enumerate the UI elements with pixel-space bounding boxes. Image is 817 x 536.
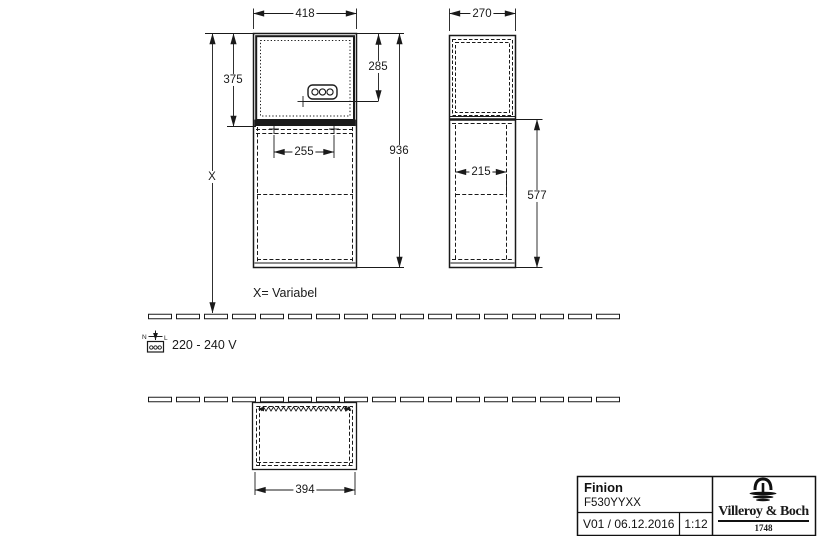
version-date: V01 / 06.12.2016 bbox=[583, 517, 674, 531]
brand-fountain-spacer bbox=[713, 477, 814, 502]
svg-text:L: L bbox=[164, 335, 168, 342]
dim-label-plan-width: 394 bbox=[293, 484, 316, 496]
brand-name: Villeroy & Boch bbox=[718, 505, 808, 522]
dim-label-lower-height: 577 bbox=[525, 190, 548, 202]
plan-view bbox=[253, 403, 357, 470]
dim-label-upper-height: 375 bbox=[221, 74, 244, 86]
socket-icon bbox=[308, 85, 337, 99]
dim-label-total-height: 936 bbox=[387, 145, 410, 157]
dim-label-variable-height: X bbox=[206, 171, 218, 183]
side-view bbox=[450, 36, 516, 268]
dim-label-socket-height: 285 bbox=[366, 61, 389, 73]
variable-note: X= Variabel bbox=[253, 286, 317, 300]
compartment-divider-band bbox=[254, 120, 355, 126]
brand-logo: Villeroy & Boch 1748 bbox=[713, 477, 814, 535]
product-name: Finion bbox=[584, 480, 623, 495]
technical-drawing-canvas: N L bbox=[0, 0, 817, 536]
dim-label-front-width: 418 bbox=[293, 7, 316, 19]
brand-year: 1748 bbox=[713, 524, 814, 533]
dim-label-mount-spacing: 255 bbox=[292, 146, 315, 158]
dim-label-depth: 270 bbox=[470, 7, 493, 19]
svg-text:N: N bbox=[142, 334, 147, 341]
drawing-scale: 1:12 bbox=[680, 517, 712, 531]
technical-drawing-page: N L bbox=[0, 0, 817, 536]
voltage-note: 220 - 240 V bbox=[172, 338, 237, 352]
dim-label-inner-depth: 215 bbox=[469, 166, 492, 178]
power-connection-icon: N L bbox=[142, 331, 168, 353]
article-number: F530YYXX bbox=[584, 497, 641, 509]
